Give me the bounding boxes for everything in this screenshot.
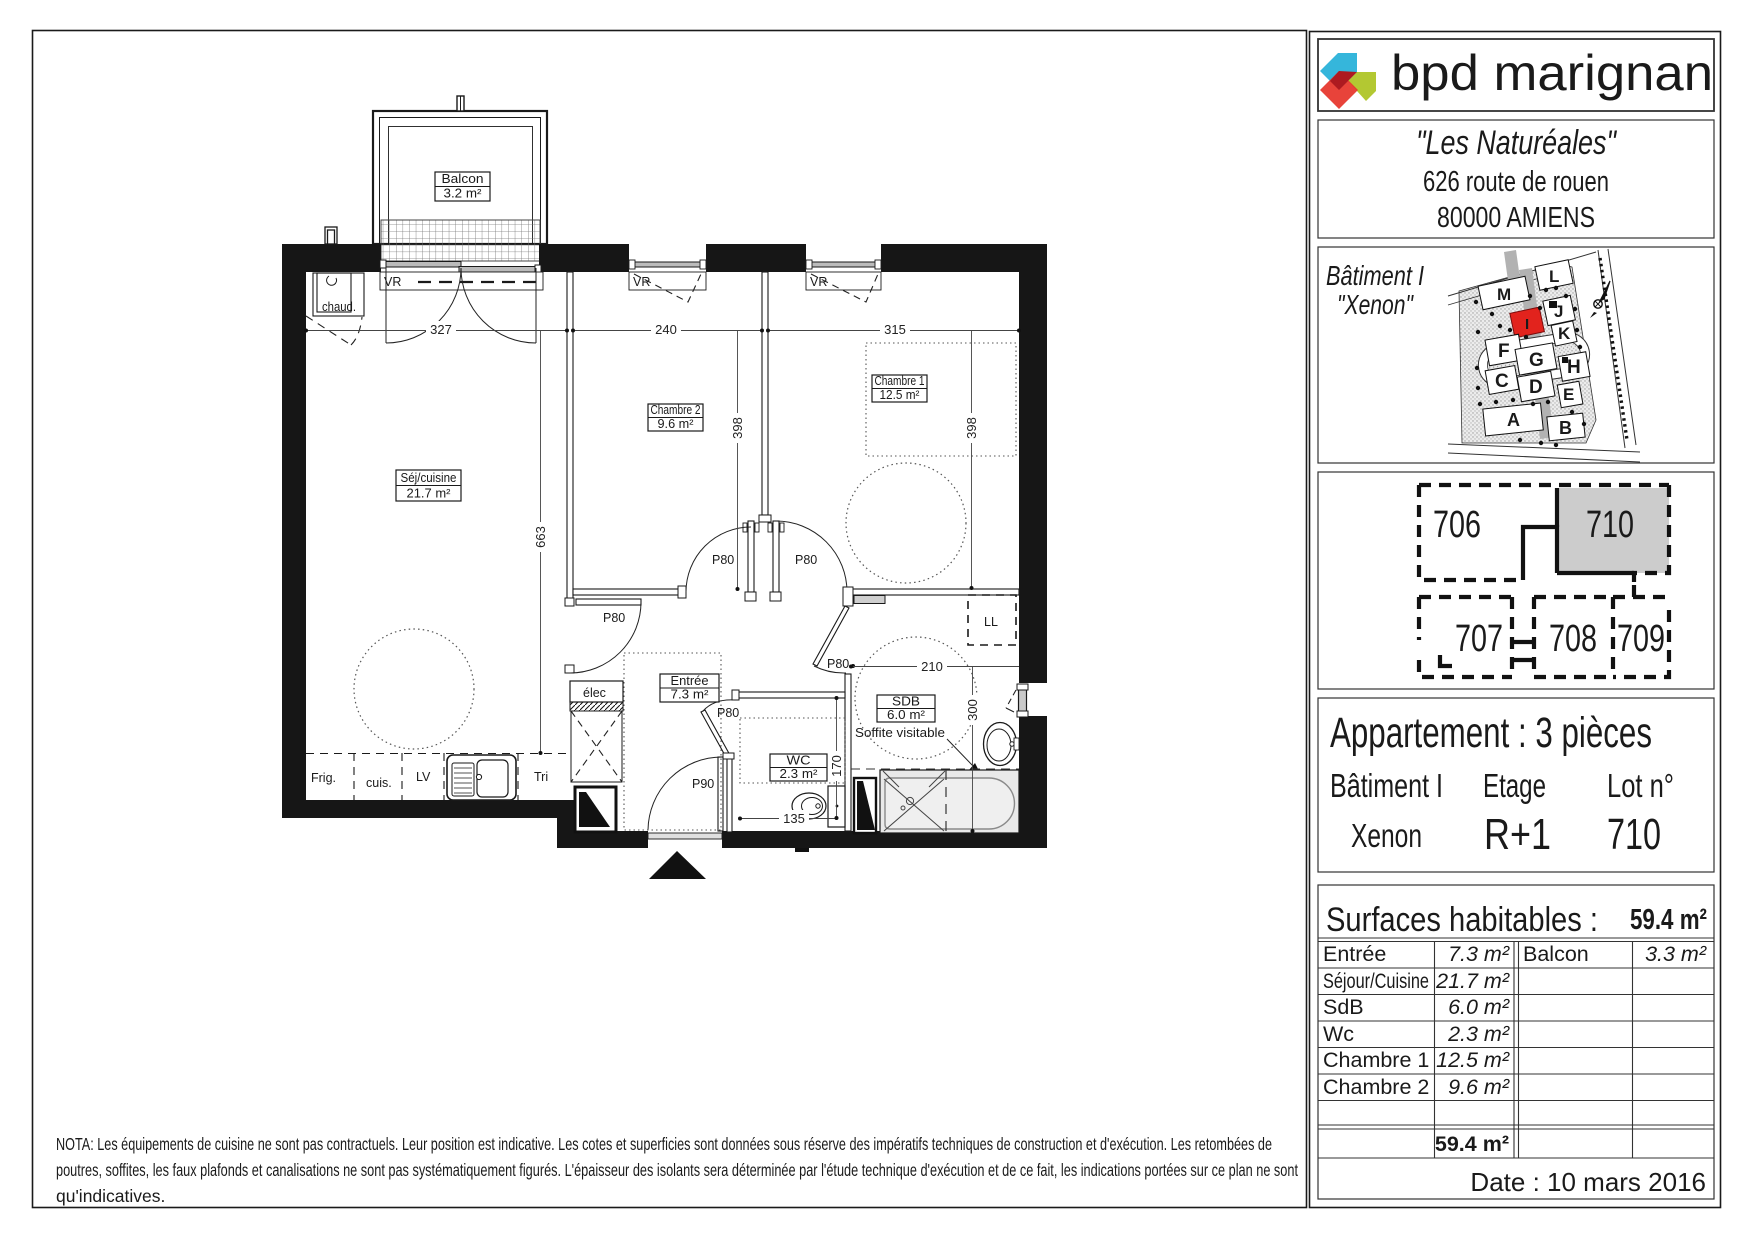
svg-text:G: G xyxy=(1529,350,1544,371)
svg-text:élec: élec xyxy=(583,686,606,700)
svg-text:Xenon: Xenon xyxy=(1351,817,1422,854)
svg-text:9.6 m²: 9.6 m² xyxy=(658,417,694,431)
svg-text:12.5 m²: 12.5 m² xyxy=(880,388,920,402)
svg-text:Appartement : 3 pièces: Appartement : 3 pièces xyxy=(1330,709,1652,757)
svg-text:Séjour/Cuisine: Séjour/Cuisine xyxy=(1323,969,1429,993)
svg-text:Etage: Etage xyxy=(1483,767,1546,804)
svg-text:cuis.: cuis. xyxy=(366,776,392,790)
svg-text:I: I xyxy=(1525,316,1529,333)
svg-text:VR: VR xyxy=(810,275,827,289)
svg-text:Date : 10 mars 2016: Date : 10 mars 2016 xyxy=(1470,1167,1706,1197)
svg-text:170: 170 xyxy=(829,755,844,777)
svg-text:K: K xyxy=(1558,324,1571,343)
svg-text:"Les Naturéales": "Les Naturéales" xyxy=(1416,124,1618,162)
svg-text:398: 398 xyxy=(730,417,745,439)
svg-text:Balcon: Balcon xyxy=(442,172,484,186)
svg-text:Surfaces habitables :: Surfaces habitables : xyxy=(1326,901,1598,939)
svg-text:7.3 m²: 7.3 m² xyxy=(671,688,709,702)
svg-text:C: C xyxy=(1495,371,1509,392)
svg-text:327: 327 xyxy=(430,322,452,337)
svg-text:P80: P80 xyxy=(603,611,625,625)
svg-text:300: 300 xyxy=(965,699,980,721)
svg-text:WC: WC xyxy=(787,754,811,768)
svg-text:Chambre 1: Chambre 1 xyxy=(875,374,925,388)
svg-text:710: 710 xyxy=(1586,504,1634,546)
svg-text:Tri: Tri xyxy=(534,770,548,784)
svg-text:21.7 m²: 21.7 m² xyxy=(407,487,451,501)
svg-text:663: 663 xyxy=(533,526,548,548)
svg-text:59.4 m²: 59.4 m² xyxy=(1435,1132,1509,1156)
svg-text:6.0 m²: 6.0 m² xyxy=(887,708,925,722)
svg-text:Entrée: Entrée xyxy=(671,674,709,688)
svg-text:710: 710 xyxy=(1607,810,1661,859)
svg-text:706: 706 xyxy=(1433,504,1481,546)
svg-text:6.0 m²: 6.0 m² xyxy=(1448,995,1510,1019)
svg-text:2.3 m²: 2.3 m² xyxy=(1447,1022,1510,1046)
svg-text:Chambre 1: Chambre 1 xyxy=(1323,1048,1429,1072)
svg-text:poutres, soffites, les faux pl: poutres, soffites, les faux plafonds et … xyxy=(56,1160,1298,1180)
svg-text:M: M xyxy=(1497,285,1511,304)
svg-text:Balcon: Balcon xyxy=(1523,942,1589,966)
svg-text:Chambre 2: Chambre 2 xyxy=(1323,1075,1429,1099)
svg-text:L: L xyxy=(1549,267,1559,286)
svg-text:Frig.: Frig. xyxy=(311,771,336,785)
svg-text:Wc: Wc xyxy=(1323,1022,1354,1046)
svg-text:708: 708 xyxy=(1549,618,1597,660)
svg-text:LL: LL xyxy=(984,615,998,629)
svg-text:NOTA: Les équipements de cuisi: NOTA: Les équipements de cuisine ne sont… xyxy=(56,1134,1272,1154)
svg-text:SdB: SdB xyxy=(1323,995,1364,1019)
svg-text:"Xenon": "Xenon" xyxy=(1337,289,1414,320)
svg-text:80000 AMIENS: 80000 AMIENS xyxy=(1437,202,1595,234)
svg-text:H: H xyxy=(1567,357,1581,378)
svg-text:chaud.: chaud. xyxy=(322,300,356,314)
svg-text:12.5 m²: 12.5 m² xyxy=(1436,1048,1510,1072)
svg-text:135: 135 xyxy=(783,811,805,826)
svg-text:Lot n°: Lot n° xyxy=(1607,767,1674,804)
svg-text:LV: LV xyxy=(416,770,431,784)
svg-text:SDB: SDB xyxy=(892,695,920,709)
svg-text:3.2 m²: 3.2 m² xyxy=(444,187,482,201)
svg-text:P80: P80 xyxy=(717,706,739,720)
svg-text:bpd marignan: bpd marignan xyxy=(1391,45,1713,101)
svg-text:D: D xyxy=(1529,377,1543,398)
svg-text:Bâtiment I: Bâtiment I xyxy=(1326,260,1424,291)
svg-text:A: A xyxy=(1507,410,1520,430)
svg-text:398: 398 xyxy=(964,417,979,439)
svg-text:qu'indicatives.: qu'indicatives. xyxy=(56,1186,165,1206)
svg-text:3.3 m²: 3.3 m² xyxy=(1645,942,1707,966)
svg-text:Chambre 2: Chambre 2 xyxy=(651,403,701,417)
svg-text:B: B xyxy=(1559,418,1572,438)
svg-text:Entrée: Entrée xyxy=(1323,942,1386,966)
svg-text:P90: P90 xyxy=(692,777,714,791)
svg-text:Soffite visitable: Soffite visitable xyxy=(855,726,945,740)
svg-text:E: E xyxy=(1563,385,1574,404)
svg-text:315: 315 xyxy=(884,322,906,337)
svg-text:707: 707 xyxy=(1455,618,1503,660)
svg-text:21.7 m²: 21.7 m² xyxy=(1435,969,1510,993)
svg-text:9.6 m²: 9.6 m² xyxy=(1448,1075,1510,1099)
svg-text:Séj/cuisine: Séj/cuisine xyxy=(401,471,457,485)
svg-text:F: F xyxy=(1498,341,1510,362)
svg-text:P80: P80 xyxy=(795,553,817,567)
svg-text:626 route de rouen: 626 route de rouen xyxy=(1423,166,1609,198)
svg-text:P80: P80 xyxy=(712,553,734,567)
svg-text:Bâtiment I: Bâtiment I xyxy=(1330,767,1443,804)
svg-text:R+1: R+1 xyxy=(1484,810,1551,859)
svg-text:P80: P80 xyxy=(827,657,849,671)
svg-text:VR: VR xyxy=(384,275,401,289)
svg-text:VR: VR xyxy=(633,275,650,289)
svg-text:7.3 m²: 7.3 m² xyxy=(1448,942,1510,966)
svg-text:2.3 m²: 2.3 m² xyxy=(780,767,818,781)
svg-text:59.4 m²: 59.4 m² xyxy=(1630,904,1707,936)
svg-text:709: 709 xyxy=(1617,618,1665,660)
svg-text:210: 210 xyxy=(921,659,943,674)
svg-text:240: 240 xyxy=(655,322,677,337)
